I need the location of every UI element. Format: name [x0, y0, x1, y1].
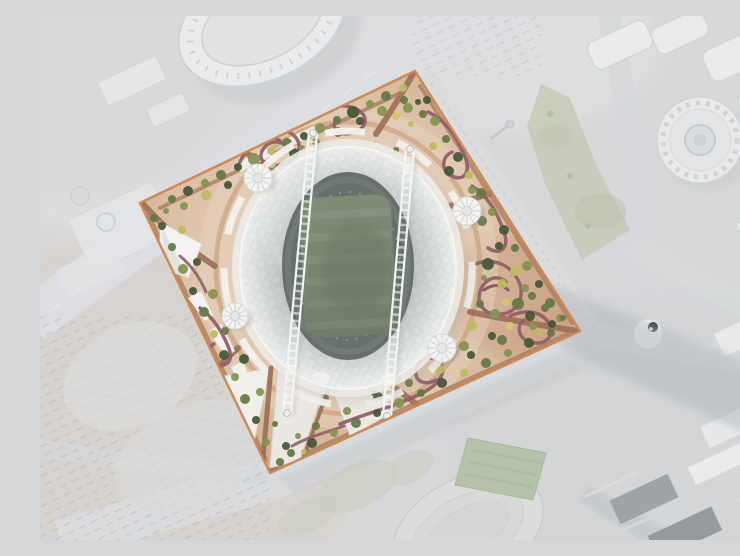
- masterplan-svg: [40, 16, 740, 540]
- stadium-masterplan-aerial-render: [40, 16, 740, 540]
- layer-veil: [40, 16, 740, 540]
